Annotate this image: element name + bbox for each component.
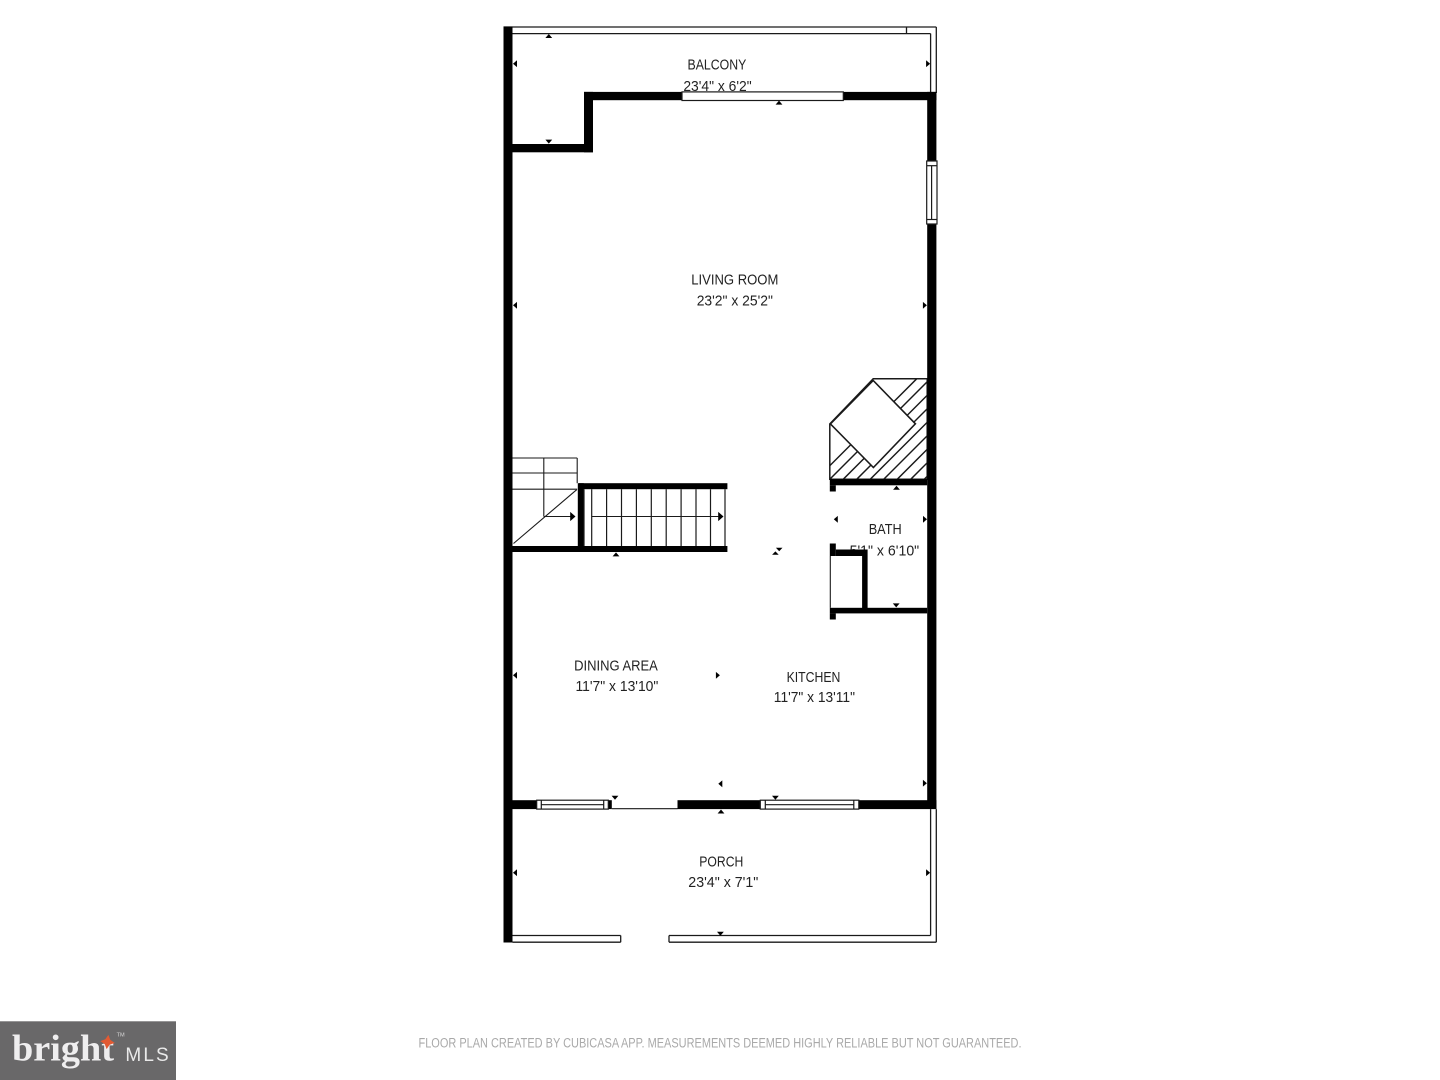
svg-text:11'7" x 13'10": 11'7" x 13'10" bbox=[575, 678, 658, 695]
svg-text:DINING AREA: DINING AREA bbox=[574, 657, 658, 674]
svg-text:bright: bright bbox=[12, 1029, 115, 1070]
svg-text:23'4" x 7'1": 23'4" x 7'1" bbox=[688, 874, 758, 891]
svg-text:TM: TM bbox=[117, 1032, 125, 1038]
svg-text:BATH: BATH bbox=[869, 521, 902, 538]
svg-text:KITCHEN: KITCHEN bbox=[787, 669, 841, 686]
svg-text:MLS: MLS bbox=[125, 1045, 170, 1066]
svg-text:BALCONY: BALCONY bbox=[688, 57, 747, 74]
svg-text:11'7" x 13'11": 11'7" x 13'11" bbox=[774, 689, 855, 706]
svg-text:LIVING ROOM: LIVING ROOM bbox=[691, 271, 778, 288]
svg-text:FLOOR PLAN CREATED BY CUBICASA: FLOOR PLAN CREATED BY CUBICASA APP. MEAS… bbox=[419, 1036, 1022, 1051]
svg-text:PORCH: PORCH bbox=[699, 853, 743, 870]
svg-text:23'2" x 25'2": 23'2" x 25'2" bbox=[697, 293, 773, 310]
